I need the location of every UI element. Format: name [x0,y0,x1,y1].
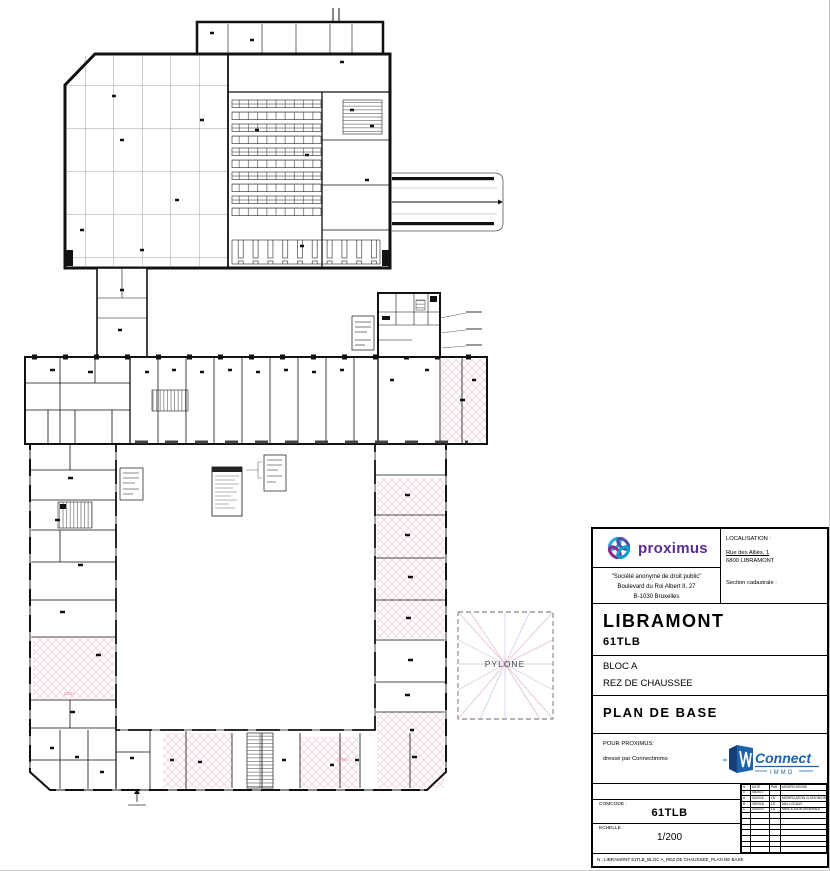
top-building [65,8,390,268]
connectimmo-logo: Connect IMMO [723,743,823,779]
localisation-label: LOCALISATION : [726,535,822,544]
canopy-extension [392,173,503,231]
bloc-label: BLOC A [603,661,827,672]
room-number-label: 12604 [337,757,349,762]
sanitary-annex [378,293,440,357]
connector-corridor [97,268,147,357]
pylone-label: PYLONE [485,659,526,669]
localisation-cell: LOCALISATION : Rue des Alliés, 1 6800 LI… [721,529,827,603]
echelle-label: ECHELLE : [599,826,740,831]
bloc-cell: BLOC A REZ DE CHAUSSEE [593,656,827,696]
proximus-wordmark: proximus [638,540,708,557]
pylone: PYLONE [458,612,553,719]
drawing-sheet: 12034 12604 [0,0,830,871]
doc-title-cell: PLAN DE BASE [593,696,827,734]
level-label: REZ DE CHAUSSEE [603,678,827,689]
title-block-header: proximus "Société anonyme de droit publi… [593,529,827,604]
entrance-arrow [128,789,146,805]
site-code: 61TLB [603,636,827,648]
note-box-annotated [246,455,286,491]
stairs [343,100,382,134]
doc-title: PLAN DE BASE [603,705,718,720]
connect-wordmark: Connect [755,750,812,766]
site-cell: LIBRAMONT 61TLB [593,604,827,656]
revision-row [742,847,827,853]
leader-notes [440,312,482,348]
proximus-logo-icon [605,534,633,562]
comcode-value: 61TLB [599,807,740,819]
middle-wing [25,293,487,444]
code-scale-revisions: COMCODE : 61TLB ECHELLE : 1/200 N DATE P… [593,784,827,853]
revision-table: N DATE PAR MODIFICATIONS 005/2017 A03/20… [741,784,827,853]
connectimmo-logo-icon: Connect IMMO [723,743,823,777]
localisation-city: 6800 LIBRAMONT [726,557,822,566]
immo-wordmark: IMMO [770,770,794,776]
note-box-small [120,468,143,500]
signature-cell: POUR PROXIMUS: dressé par Connectimmo Co… [593,734,827,784]
comcode-cell: COMCODE : 61TLB [593,800,740,824]
footnote: N : LIBRAMONT 61TLB_BLOC A_REZ DE CHAUSS… [593,853,827,866]
company-address: "Société anonyme de droit public" Boulev… [593,568,720,603]
echelle-cell: ECHELLE : 1/200 [593,824,740,853]
legend-box [212,467,242,516]
cadastre-label: Section cadastrale : [726,579,822,588]
room-number-label: 12034 [63,691,75,696]
site-name: LIBRAMONT [603,611,827,632]
localisation-street: Rue des Alliés, 1 [726,549,822,558]
echelle-value: 1/200 [599,832,740,843]
stairs [152,390,188,411]
title-block: proximus "Société anonyme de droit publi… [591,527,829,868]
proximus-logo: proximus [593,529,720,568]
annotation-box [352,316,374,350]
